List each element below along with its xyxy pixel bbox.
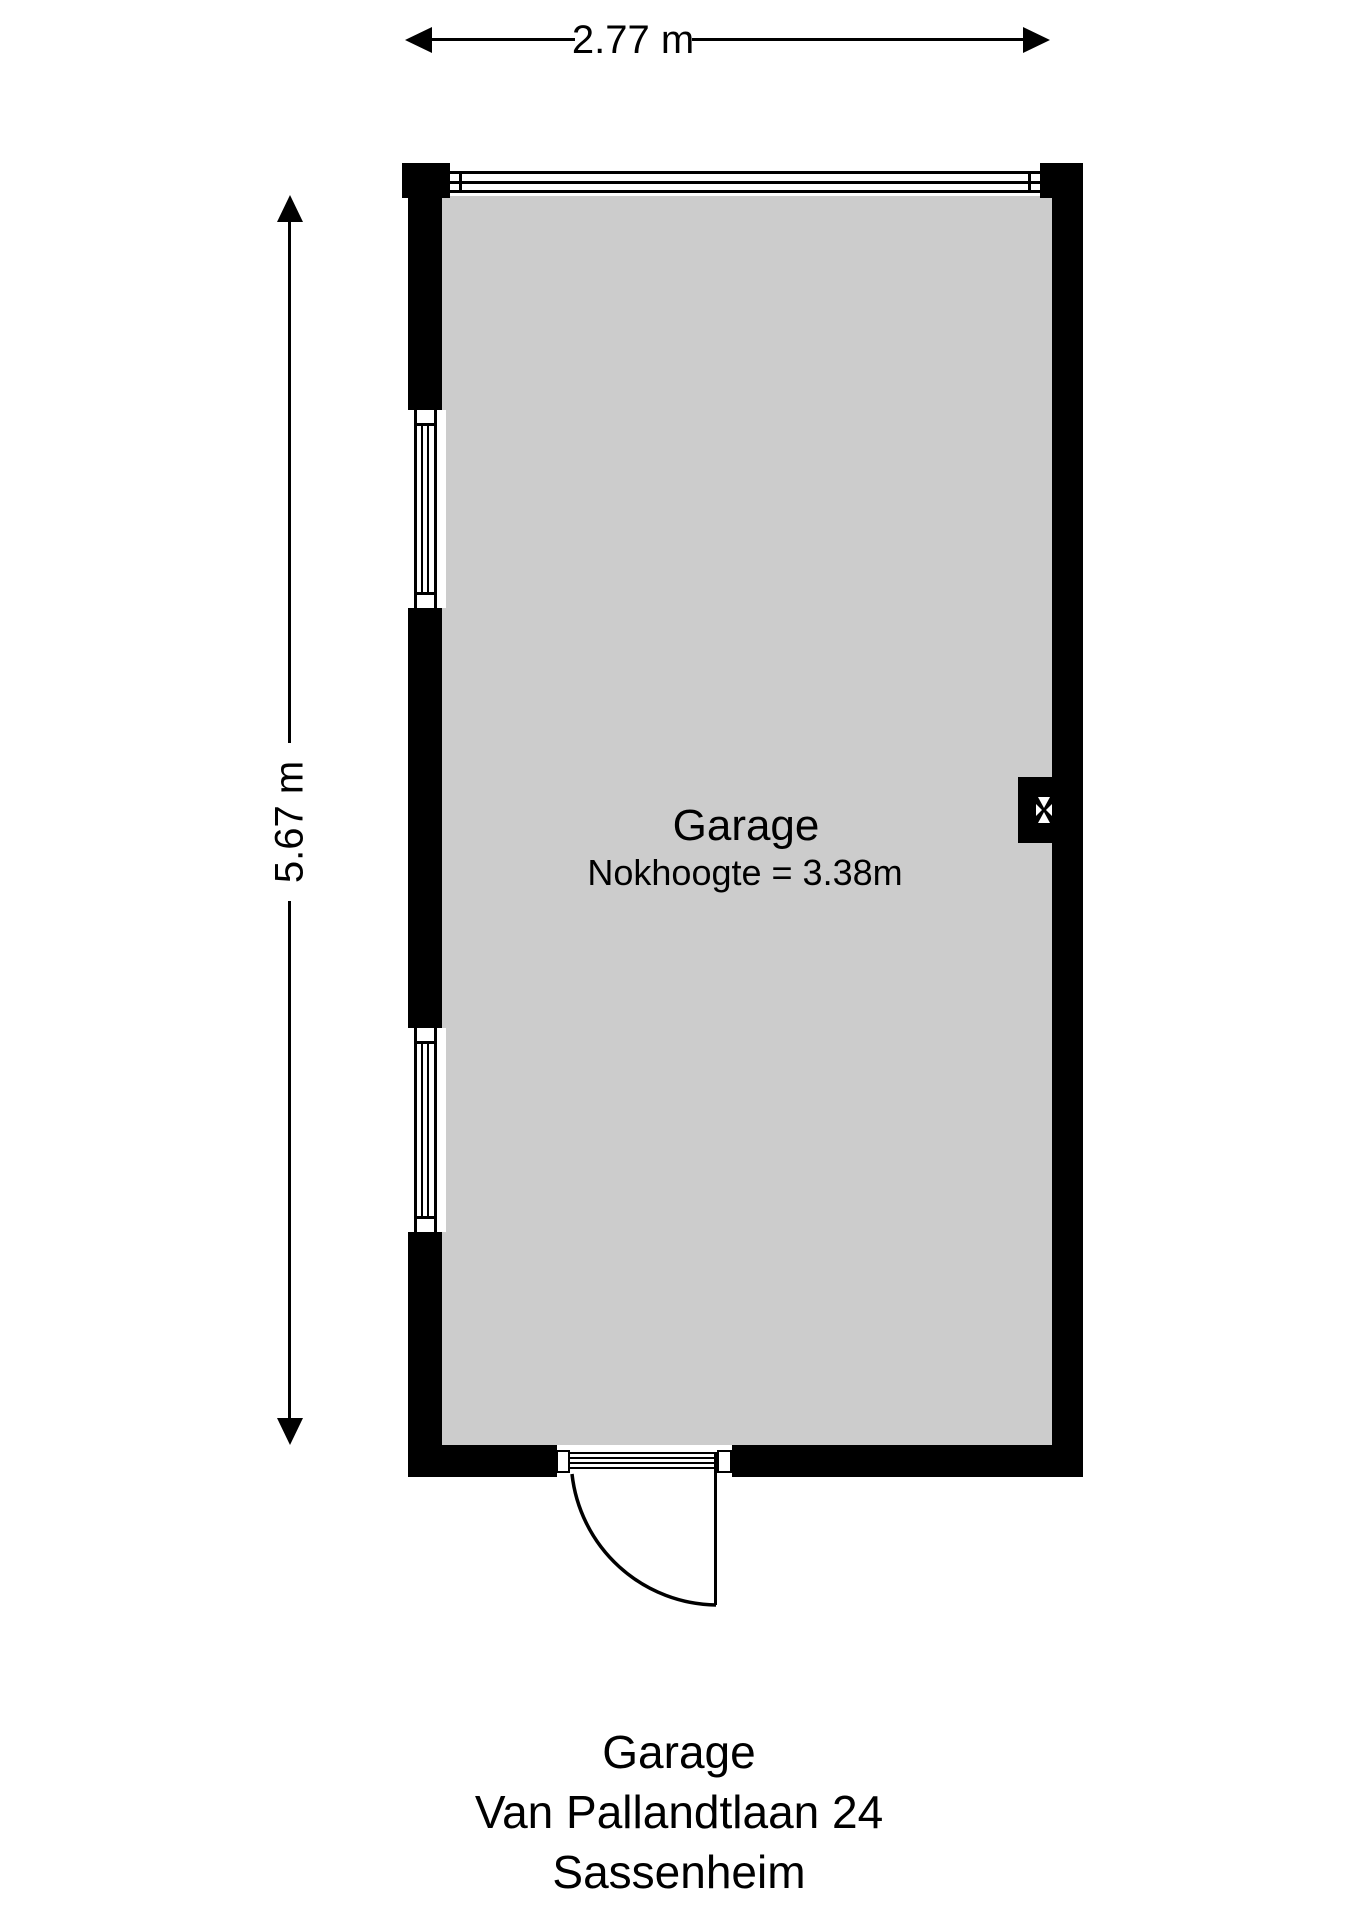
arrow-right-icon [1023,27,1050,53]
window-line [427,424,429,594]
door-threshold [570,1452,717,1469]
caption-line: Van Pallandtlaan 24 [475,1782,883,1842]
window-line [427,1042,429,1218]
dimension-line [430,38,575,41]
wall-bottom-right [732,1445,1083,1477]
window-left-lower [414,1028,437,1232]
room-sublabel: Nokhoogte = 3.38m [587,852,902,894]
window-line [421,1042,423,1218]
door-swing-arc [558,1468,728,1613]
dimension-line [288,901,291,1418]
wall-right [1052,196,1083,1477]
window-line [450,181,1040,184]
room-label: Garage [673,801,820,851]
caption-line: Garage [475,1722,883,1782]
window-line [1028,174,1031,190]
threshold-line [570,1457,717,1459]
window-line [417,592,434,595]
window-line [417,423,434,426]
window-left-upper [414,410,437,608]
window-top [450,171,1040,193]
dimension-line [288,221,291,743]
wall-bottom-left [408,1445,557,1477]
wall-left-middle [408,608,442,1028]
wall-corner-top-left [402,163,450,198]
caption: Garage Van Pallandtlaan 24 Sassenheim [475,1722,883,1902]
floorplan-page: 2.77 m 5.67 m [0,0,1358,1920]
window-line [459,174,462,190]
arrow-down-icon [277,1418,303,1445]
dim-height-label: 5.67 m [268,761,313,883]
wall-left-lower [408,1232,442,1477]
arrow-left-icon [405,27,432,53]
dimension-line [692,38,1023,41]
dim-width-label: 2.77 m [572,18,694,63]
window-line [417,1216,434,1219]
window-line [417,1041,434,1044]
wall-corner-top-right [1040,163,1083,198]
threshold-line [570,1462,717,1464]
caption-line: Sassenheim [475,1842,883,1902]
flue-vent-icon [1036,796,1052,824]
window-line [421,424,423,594]
flue-vent [1018,777,1052,843]
wall-left-upper [408,195,442,410]
arrow-up-icon [277,195,303,222]
